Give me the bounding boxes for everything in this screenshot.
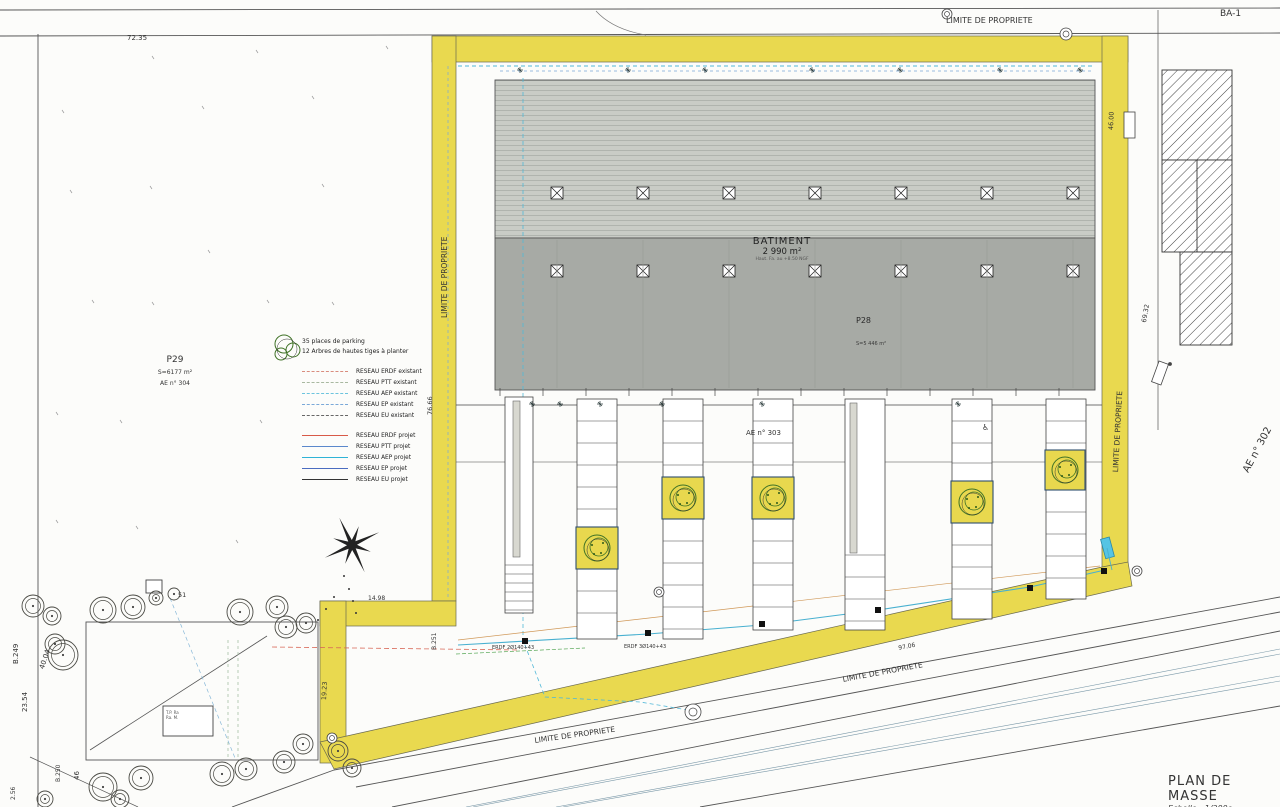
annotation-label: B.249 (13, 644, 20, 664)
annotation-label: 2.56 (11, 787, 17, 800)
legend-item: RESEAU AEP existant (302, 388, 462, 399)
annotation-label: LIMITE DE PROPRIETE (441, 237, 449, 318)
parcel-p29-area: S=6177 m² (135, 369, 215, 376)
plan-title: PLAN DE MASSE (1168, 774, 1278, 804)
legend-item: RESEAU EU existant (302, 410, 462, 421)
annotation-label: B.250 (56, 765, 62, 782)
legend-line-swatch (302, 435, 348, 436)
annotation-label: 76.66 (427, 396, 434, 415)
building-label-block: BATIMENT 2 990 m² Haut. Fa. au +8.50 NGF (720, 236, 844, 262)
legend-line-swatch (302, 393, 348, 394)
legend-line-swatch (302, 404, 348, 405)
parcel-p29-block: P29 S=6177 m² AE n° 304 (135, 355, 215, 387)
building-area: 2 990 m² (720, 247, 844, 257)
legend-item-label: RESEAU PTT existant (356, 380, 417, 386)
transformer-note-line2: Ra. M. (166, 715, 210, 720)
legend-item: RESEAU PTT existant (302, 377, 462, 388)
bottom-road-lines (30, 597, 1280, 807)
legend-item-label: RESEAU EU projet (356, 477, 408, 483)
parcel-p29-label: P29 (135, 355, 215, 365)
legend-item: RESEAU PTT projet (302, 441, 462, 452)
legend-projet-group: RESEAU ERDF projetRESEAU PTT projetRESEA… (302, 430, 462, 485)
annotation-label: 46 (74, 771, 81, 780)
zone-p28-block: P28 S=5 446 m² (856, 316, 886, 347)
legend-item-label: RESEAU ERDF projet (356, 433, 415, 439)
annotation-label: ERDF 2Ø140+43 (492, 646, 534, 651)
transformer-note-box: T.P. Ra Ra. M. (166, 710, 210, 720)
legend-line-swatch (302, 468, 348, 469)
annotation-label: 51 (178, 592, 186, 599)
annotation-label: 46.00 (1108, 111, 1115, 130)
building-name: BATIMENT (720, 236, 844, 247)
legend-line-swatch (302, 457, 348, 458)
annotation-label: LIMITE DE PROPRIETE (946, 17, 1033, 25)
annotation-label: 19.23 (321, 681, 328, 700)
zone-p28-label: P28 (856, 316, 886, 325)
legend-item: RESEAU EP projet (302, 463, 462, 474)
legend-line-swatch (302, 415, 348, 416)
legend-item-label: RESEAU EU existant (356, 413, 414, 419)
parcel-p29-ref: AE n° 304 (135, 380, 215, 387)
legend-item-label: RESEAU AEP existant (356, 391, 417, 397)
legend-item-label: RESEAU EP projet (356, 466, 407, 472)
annotation-label: BA-1 (1220, 10, 1241, 19)
annotation-label: 14.98 (368, 596, 385, 602)
annotation-label: ♿ (982, 424, 989, 432)
legend-item-label: RESEAU AEP projet (356, 455, 411, 461)
legend-item-label: RESEAU PTT projet (356, 444, 410, 450)
legend-item: RESEAU AEP projet (302, 452, 462, 463)
legend-line-swatch (302, 371, 348, 372)
legend-item-label: RESEAU EP existant (356, 402, 413, 408)
title-block: PLAN DE MASSE Echelle : 1/200e (1168, 774, 1278, 807)
legend-item: RESEAU ERDF existant (302, 366, 462, 377)
site-plan-linework (0, 0, 1280, 807)
annotation-label: B.251 (432, 633, 438, 650)
legend-block: 35 places de parking 12 Arbres de hautes… (302, 337, 462, 485)
building-footprint (495, 80, 1095, 390)
zone-p28-area: S=5 446 m² (856, 341, 886, 347)
legend-parking-note: 35 places de parking (302, 337, 462, 347)
legend-line-swatch (302, 479, 348, 480)
legend-item-label: RESEAU ERDF existant (356, 369, 422, 375)
site-plan-page: BATIMENT 2 990 m² Haut. Fa. au +8.50 NGF… (0, 0, 1280, 807)
legend-trees-note: 12 Arbres de hautes tiges à planter (302, 347, 462, 357)
legend-existant-group: RESEAU ERDF existantRESEAU PTT existantR… (302, 366, 462, 421)
legend-line-swatch (302, 446, 348, 447)
annotation-label: 72.35 (127, 35, 147, 42)
legend-item: RESEAU EP existant (302, 399, 462, 410)
building-height-note: Haut. Fa. au +8.50 NGF (720, 257, 844, 262)
annotation-label: 23.54 (22, 692, 29, 712)
legend-line-swatch (302, 382, 348, 383)
legend-item: RESEAU EU projet (302, 474, 462, 485)
legend-item: RESEAU ERDF projet (302, 430, 462, 441)
parcel-ae303-label: AE n° 303 (746, 430, 781, 437)
annotation-label: ERDF 3Ø140+43 (624, 645, 666, 650)
existing-buildings-hatched (1162, 70, 1232, 345)
